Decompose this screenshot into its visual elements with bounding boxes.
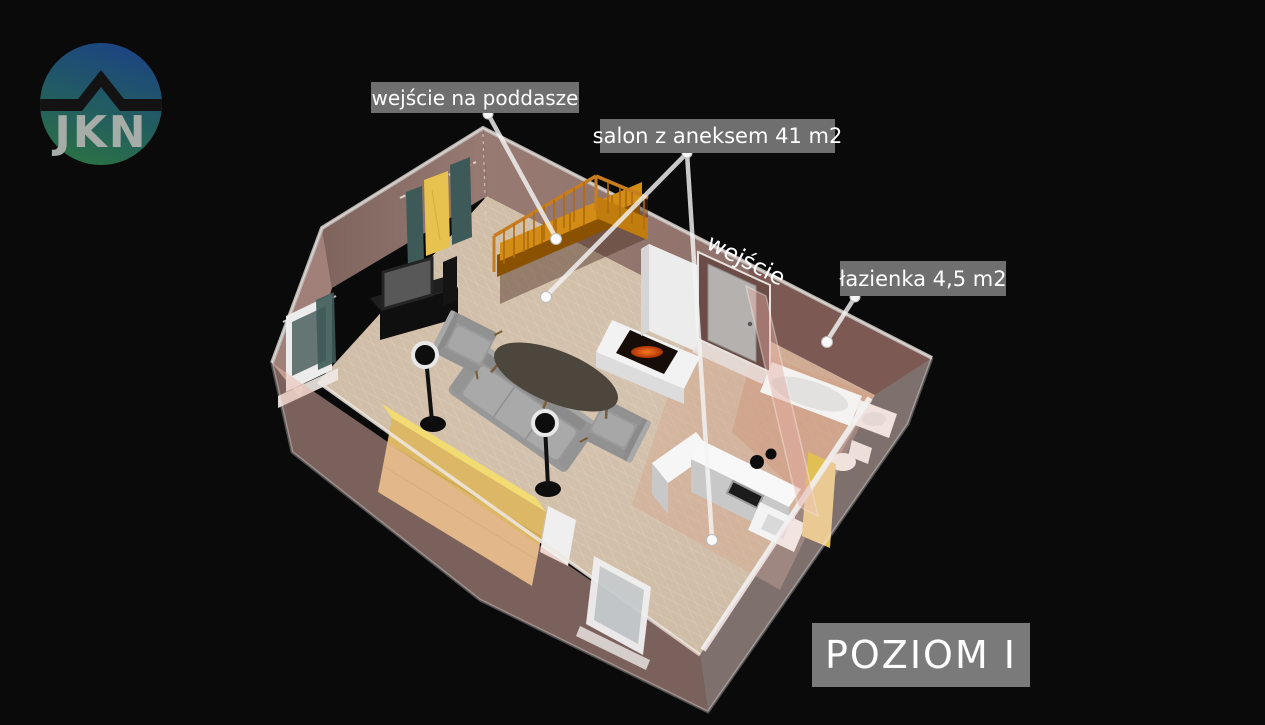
curtain-right [450,157,472,245]
lamp-shade [413,343,437,367]
yellow-wall-hanging [424,171,450,256]
left-window-curtain [316,292,336,370]
chimney-side [641,244,649,336]
fire [631,346,663,358]
stove-burner [750,455,764,469]
floorplan-3d-render [0,0,1265,725]
label-attic-entrance: wejście na poddasze [371,82,579,113]
label-bathroom: łazienka 4,5 m2 [840,261,1006,296]
tv-speaker [443,256,457,306]
level-badge: POZIOM I [812,623,1030,687]
stove-burner [766,449,777,460]
logo-text: JKN [51,107,147,158]
door-handle [748,322,752,326]
label-living-room: salon z aneksem 41 m2 [600,119,835,153]
lamp-shade [533,411,557,435]
jkn-logo: JKN [37,41,165,169]
screenshot-stage: JKN wejście na poddasze salon z aneksem … [0,0,1265,725]
curtain-left [406,186,424,268]
